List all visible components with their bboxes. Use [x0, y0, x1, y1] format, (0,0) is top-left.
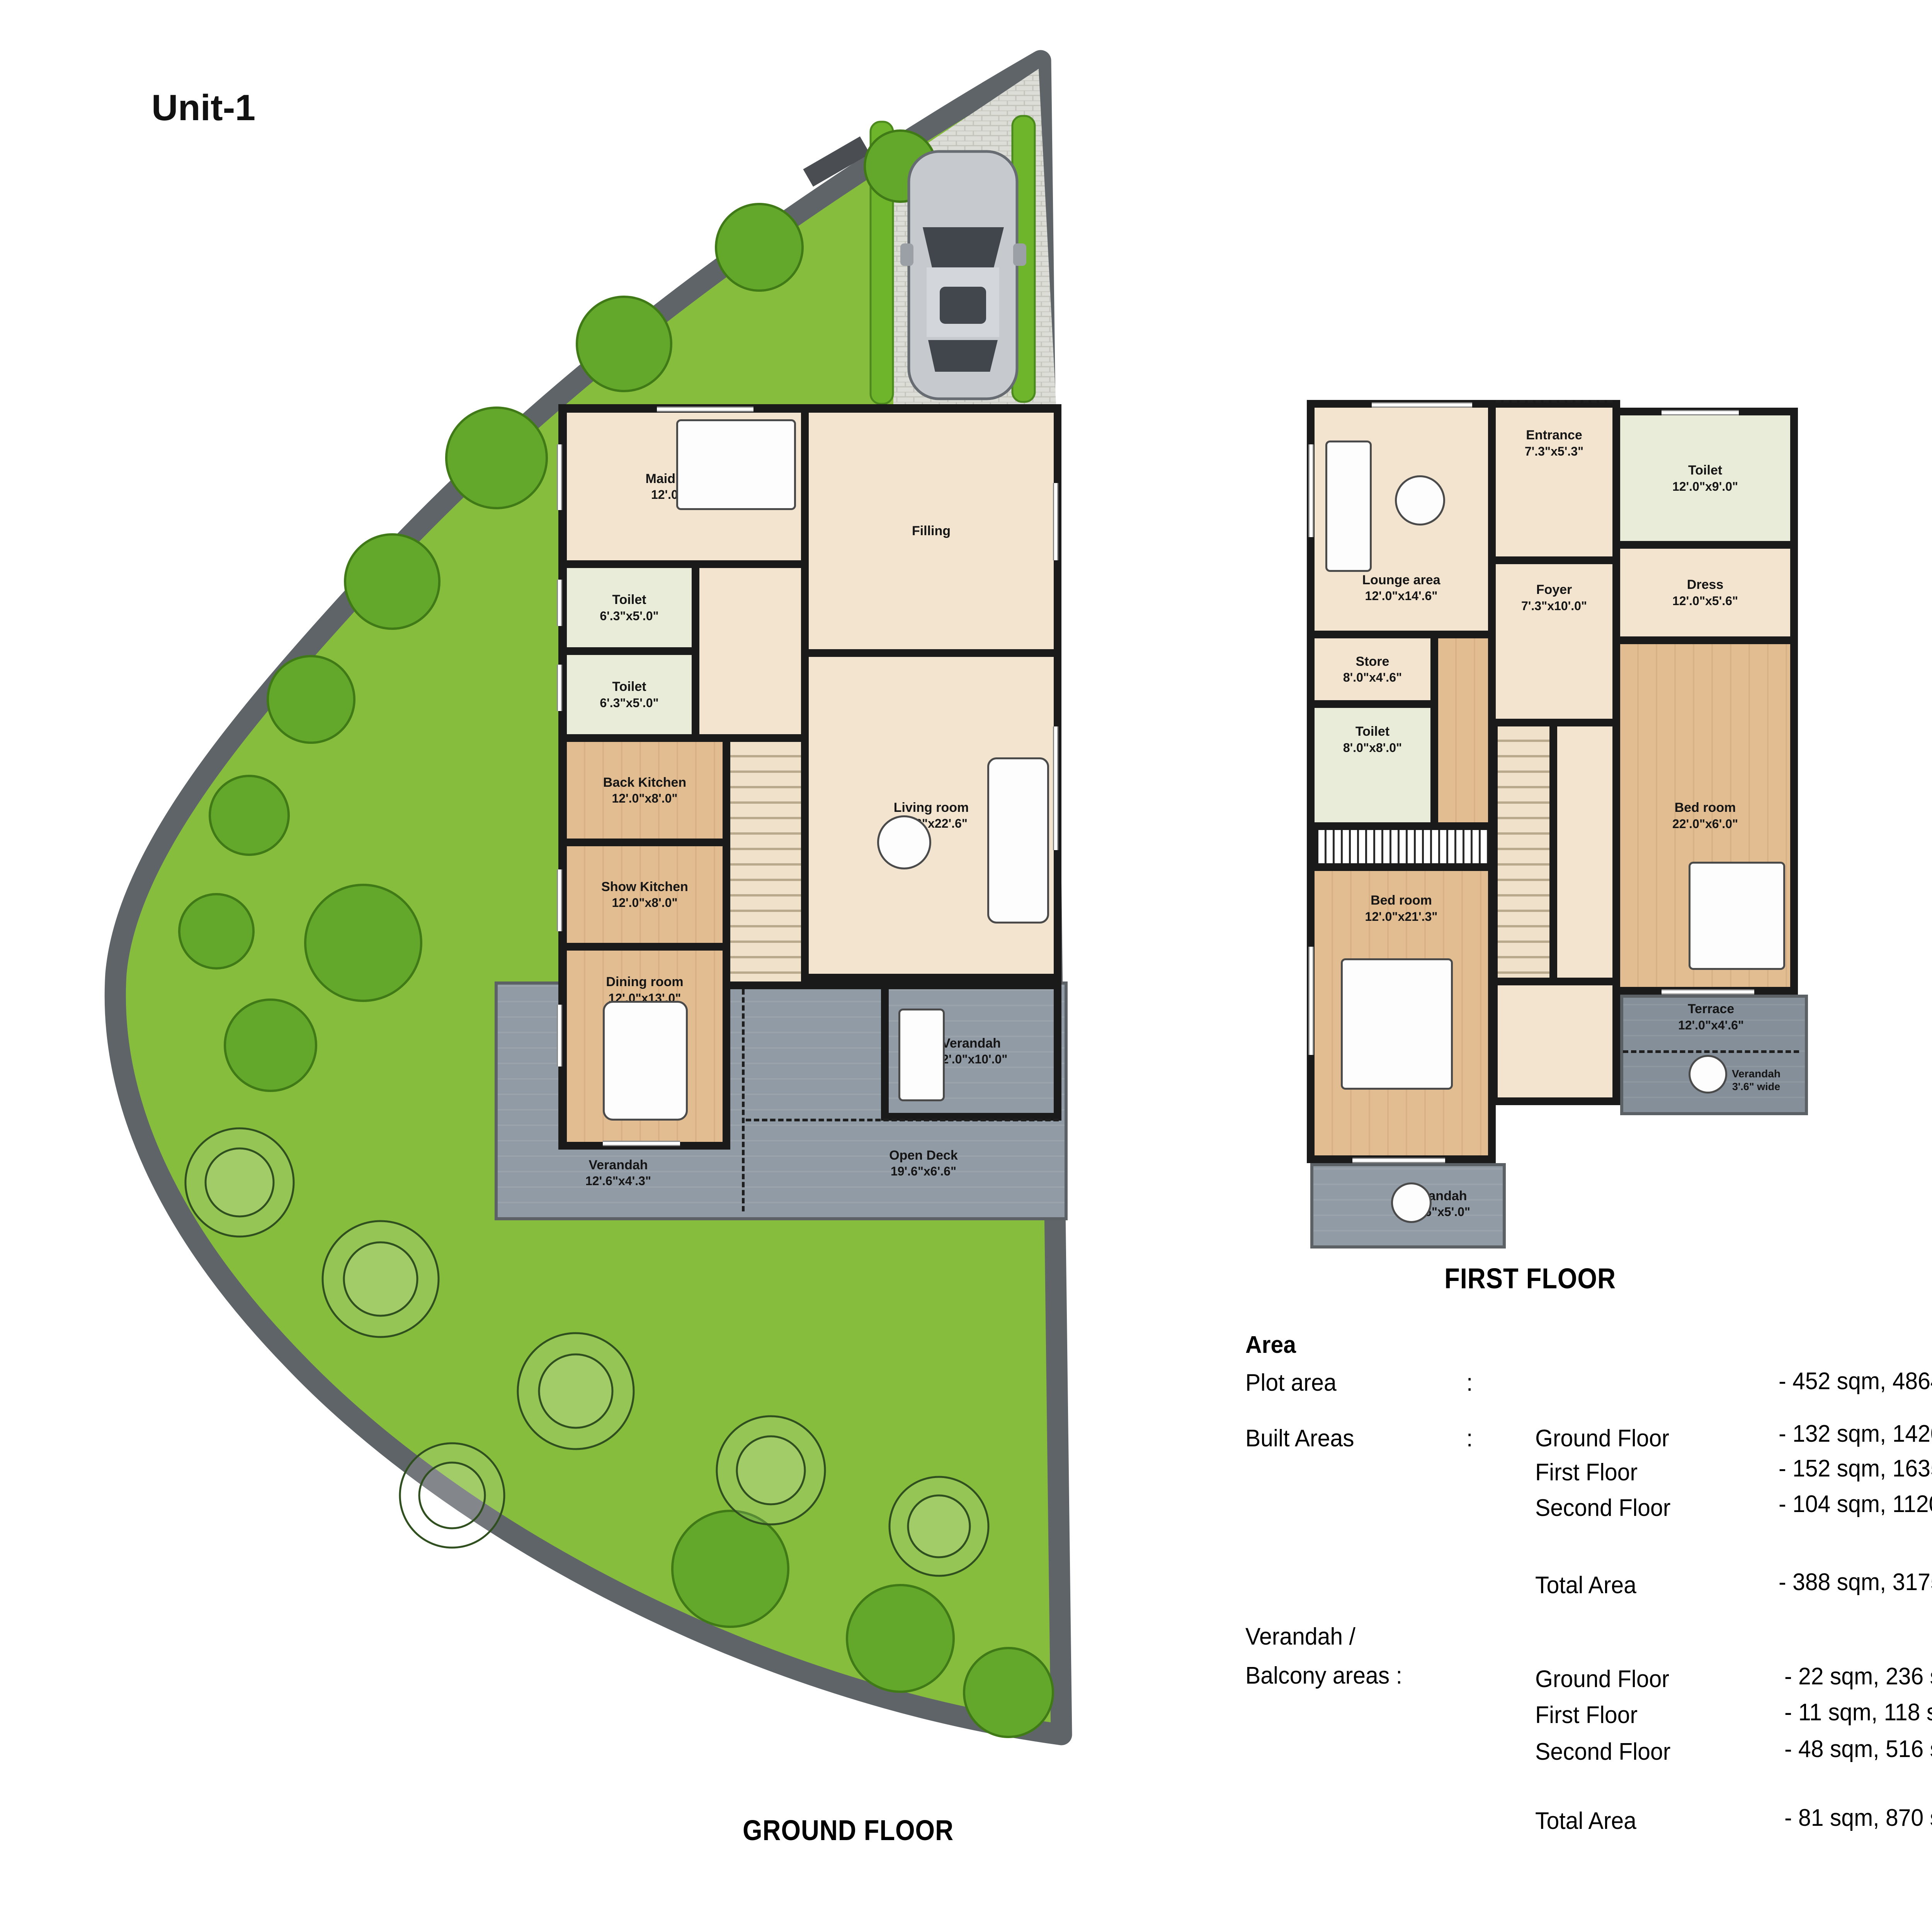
window: [1662, 989, 1754, 995]
plot-area-value: - 452 sqm, 4864 sft: [1779, 1369, 1932, 1393]
dining-table-icon: [603, 1001, 688, 1121]
built-first-value: - 152 sqm, 1635 sft: [1779, 1457, 1932, 1481]
table-icon: [1395, 475, 1445, 526]
first-landing-lower: [1498, 985, 1612, 1097]
window: [1352, 1158, 1445, 1163]
table-icon: [1391, 1182, 1432, 1223]
room-toilet-2: Toilet 6'.3"x5'.0": [567, 655, 692, 734]
room-foyer: Foyer 7'.3"x10'.0": [1496, 564, 1612, 719]
built-second-value: - 104 sqm, 1120 sft: [1779, 1492, 1932, 1516]
built-second-label: Second Floor: [1535, 1496, 1670, 1520]
window: [603, 1141, 680, 1146]
sofa-icon: [987, 757, 1049, 924]
ver-second-value: - 48 sqm, 516 sft: [1784, 1737, 1932, 1761]
room-filling: Filling: [809, 413, 1054, 649]
colon: :: [1466, 1427, 1473, 1451]
ver-first-value: - 11 sqm, 118 sft: [1784, 1701, 1932, 1725]
built-total-label: Total Area: [1535, 1573, 1636, 1597]
window: [557, 869, 562, 931]
open-edge: [1496, 400, 1612, 403]
room-show-kitchen: Show Kitchen 12'.0"x8'.0": [567, 846, 723, 943]
ver-total-value: - 81 sqm, 870 sft: [1784, 1806, 1932, 1830]
window: [657, 407, 753, 412]
room-store: Store 8'.0"x4'.6": [1315, 638, 1430, 700]
window: [1053, 483, 1058, 560]
table-heading: Area: [1245, 1333, 1296, 1357]
first-hall: [1438, 638, 1488, 822]
deck-divider: [746, 1119, 1059, 1121]
window: [1308, 444, 1314, 537]
table-icon: [877, 815, 931, 869]
built-ground-label: Ground Floor: [1535, 1427, 1669, 1451]
bed-icon: [1341, 958, 1453, 1090]
label-open-deck: Open Deck 19'.6"x6'.6": [811, 1140, 1036, 1186]
verandah-label-1: Verandah /: [1245, 1625, 1355, 1649]
window: [557, 1005, 562, 1067]
page-title: Unit-1: [151, 90, 255, 126]
closet-icon: [1318, 830, 1488, 863]
area-table: Area Plot area : - 452 sqm, 4864 sft Bui…: [1245, 1322, 1932, 1882]
built-areas-label: Built Areas: [1245, 1427, 1354, 1451]
sofa-icon: [898, 1009, 945, 1101]
room-toilet-1: Toilet 6'.3"x5'.0": [567, 568, 692, 647]
ground-stairs: [730, 742, 801, 981]
ver-ground-value: - 22 sqm, 236 sft: [1784, 1665, 1932, 1689]
label-terrace-first: Terrace 12'.0"x4'.6": [1620, 1001, 1802, 1047]
first-stair-landing: [1557, 726, 1612, 978]
room-entrance: Entrance 7'.3"x5'.3": [1496, 408, 1612, 556]
table-icon: [1689, 1055, 1727, 1094]
floor-plan-sheet: Maid's room 12'.0"x9'.3" Toilet 6'.3"x5'…: [0, 0, 1932, 1917]
deck-divider: [742, 989, 745, 1211]
built-first-label: First Floor: [1535, 1461, 1638, 1485]
bed-icon: [1689, 862, 1785, 970]
window: [1308, 947, 1314, 1055]
window: [1053, 726, 1058, 850]
bed-icon: [676, 419, 796, 510]
window: [557, 444, 562, 510]
window: [557, 580, 562, 626]
plot-area-label: Plot area: [1245, 1371, 1337, 1395]
room-dress-first: Dress 12'.0"x5'.6": [1620, 549, 1790, 636]
colon: :: [1466, 1371, 1473, 1395]
room-back-kitchen: Back Kitchen 12'.0"x8'.0": [567, 742, 723, 839]
terrace-divider: [1623, 1050, 1799, 1053]
ver-total-label: Total Area: [1535, 1809, 1636, 1833]
ground-hall: [699, 568, 801, 734]
window: [557, 665, 562, 711]
ver-first-label: First Floor: [1535, 1703, 1638, 1727]
room-toilet-mid: Toilet 8'.0"x8'.0": [1315, 708, 1430, 822]
ver-ground-label: Ground Floor: [1535, 1667, 1669, 1691]
car-icon: [900, 151, 1026, 399]
built-ground-value: - 132 sqm, 1420 sft: [1779, 1422, 1932, 1446]
caption-first-floor: FIRST FLOOR: [1442, 1264, 1619, 1293]
verandah-label-2: Balcony areas :: [1245, 1664, 1402, 1688]
room-toilet-top: Toilet 12'.0"x9'.0": [1620, 415, 1790, 541]
built-total-value: - 388 sqm, 3175 sft: [1779, 1570, 1932, 1594]
label-verandah-bottom-g: Verandah 12'.6"x4'.3": [533, 1150, 703, 1196]
window: [1372, 402, 1472, 408]
caption-ground-floor: GROUND FLOOR: [739, 1816, 957, 1845]
sofa-icon: [1325, 441, 1372, 572]
ver-second-label: Second Floor: [1535, 1740, 1670, 1764]
window: [1662, 410, 1739, 415]
first-stairs: [1498, 726, 1549, 978]
